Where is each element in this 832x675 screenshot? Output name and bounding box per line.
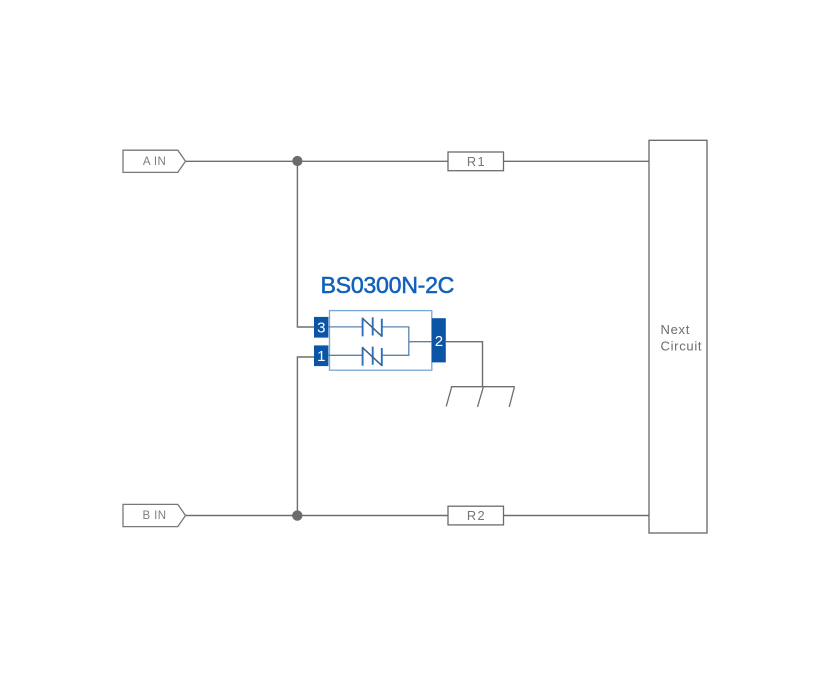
svg-text:3: 3 [317, 320, 325, 337]
svg-text:2: 2 [435, 333, 443, 350]
svg-text:A IN: A IN [143, 156, 166, 168]
svg-text:Next: Next [661, 322, 691, 337]
svg-text:BS0300N-2C: BS0300N-2C [321, 272, 455, 298]
svg-text:Circuit: Circuit [661, 338, 703, 353]
svg-text:1: 1 [317, 348, 325, 365]
svg-text:R2: R2 [467, 508, 486, 523]
svg-text:R1: R1 [467, 154, 486, 169]
svg-text:B IN: B IN [143, 510, 167, 522]
